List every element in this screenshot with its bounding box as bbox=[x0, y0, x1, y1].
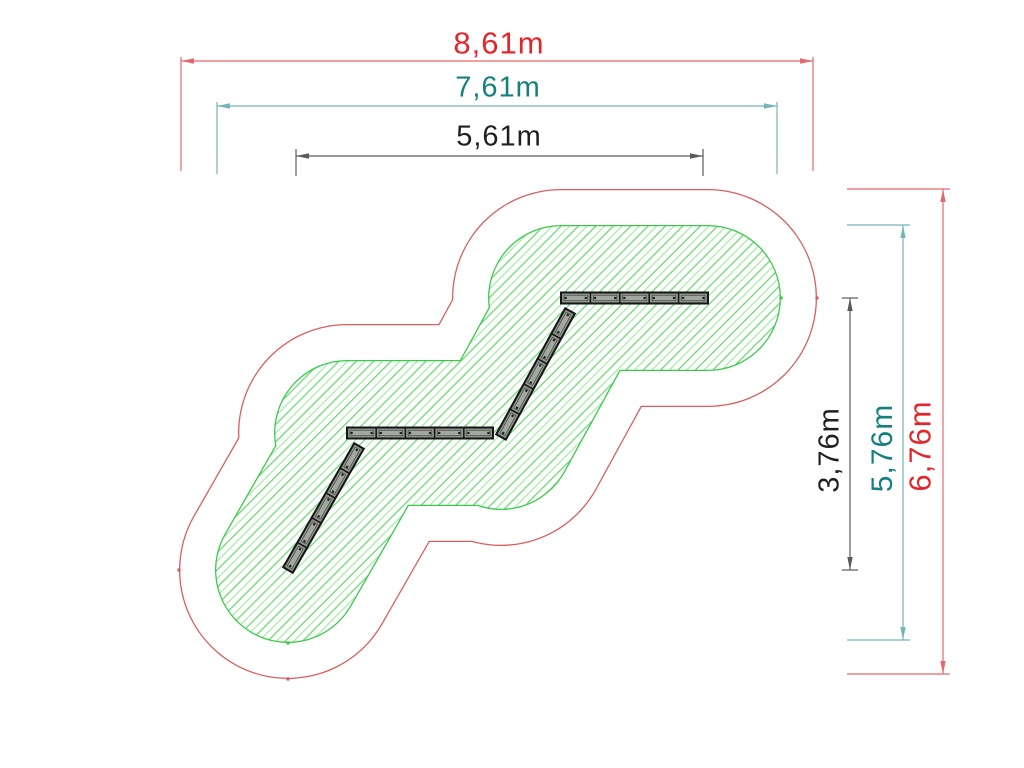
dimension-arrowhead bbox=[690, 153, 703, 158]
dimension-arrowhead bbox=[900, 627, 905, 640]
dimension-arrowhead bbox=[217, 103, 230, 108]
vertex-marker bbox=[286, 641, 289, 644]
dimension-arrowhead bbox=[940, 661, 945, 674]
balance-beam-3 bbox=[347, 428, 493, 439]
dim-label-outer-height: 6,76m bbox=[905, 400, 936, 491]
dimension-arrowhead bbox=[181, 58, 194, 63]
dimension-arrowhead bbox=[900, 225, 905, 238]
dimension-arrowhead bbox=[296, 153, 309, 158]
vertex-marker bbox=[779, 296, 782, 299]
dimension-arrowhead bbox=[847, 557, 852, 570]
dim-label-outer-width: 8,61m bbox=[453, 28, 544, 59]
dimension-arrowhead bbox=[764, 103, 777, 108]
site-plan-svg bbox=[0, 0, 1024, 768]
dimension-horizontal-3 bbox=[296, 149, 703, 176]
vertex-marker bbox=[286, 677, 289, 680]
dim-label-surfacing-height: 5,76m bbox=[868, 404, 898, 492]
dimension-arrowhead bbox=[847, 298, 852, 311]
vertex-marker bbox=[815, 296, 818, 299]
dim-label-equipment-width: 5,61m bbox=[456, 123, 542, 152]
playground-plan-canvas: 8,61m 7,61m 5,61m 3,76m 5,76m 6,76m bbox=[0, 0, 1024, 768]
dimension-arrowhead bbox=[800, 58, 813, 63]
vertex-marker bbox=[177, 568, 180, 571]
dimension-arrowhead bbox=[940, 189, 945, 202]
dim-label-surfacing-width: 7,61m bbox=[455, 74, 541, 103]
dim-label-equipment-height: 3,76m bbox=[816, 407, 845, 493]
balance-beam-1 bbox=[561, 293, 708, 304]
